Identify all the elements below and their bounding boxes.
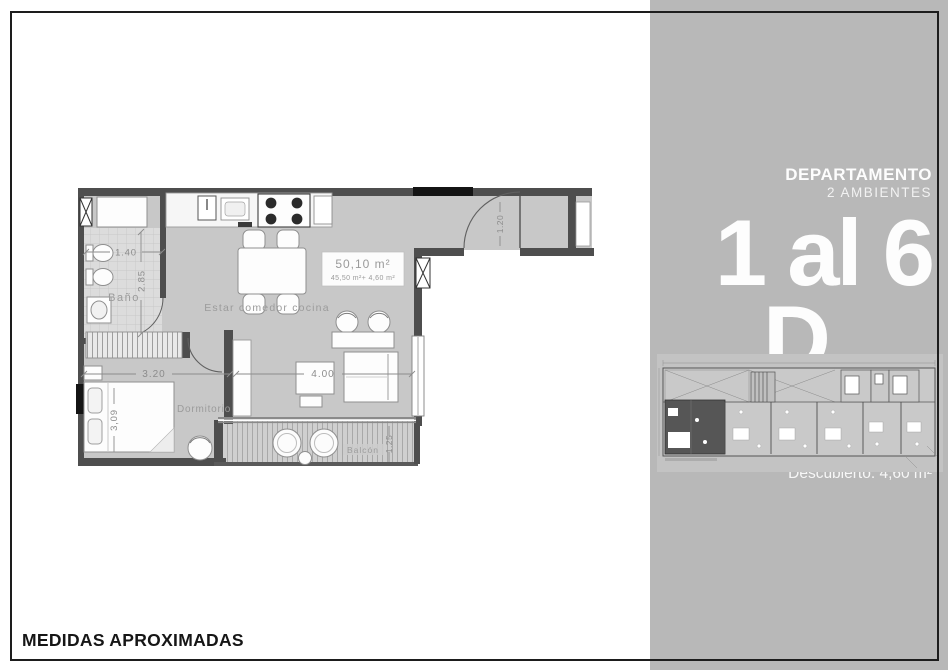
desk xyxy=(332,332,394,348)
floor-plan: 50,10 m² 45,50 m²+ 4,60 m² Baño Estar co… xyxy=(70,180,610,480)
balcony-sliding-door xyxy=(218,417,416,423)
room-label-living: Estar comedor cocina xyxy=(204,302,330,314)
key-plan-highlighted-unit xyxy=(665,400,725,454)
stair-landing xyxy=(576,202,590,246)
chair xyxy=(243,230,265,250)
toilet-icon xyxy=(86,245,93,261)
dim-living-width: 4.00 xyxy=(311,369,334,380)
area-label-detail: 45,50 m²+ 4,60 m² xyxy=(331,275,395,282)
chair xyxy=(368,311,390,333)
footer-note: MEDIDAS APROXIMADAS xyxy=(22,630,244,651)
dining-table xyxy=(238,248,306,294)
dim-bedroom-length: 3,09 xyxy=(109,409,120,431)
room-label-bathroom: Baño xyxy=(108,292,140,304)
vent-icon xyxy=(238,222,252,227)
dim-bath-length: 2.85 xyxy=(137,270,148,292)
stove-icon xyxy=(258,194,310,227)
pouf xyxy=(300,396,322,407)
chair xyxy=(277,230,299,250)
room-label-balcony: Balcón xyxy=(347,445,379,455)
unit-range: 1 al 6 xyxy=(662,210,932,296)
room-label-bedroom: Dormitorio xyxy=(177,404,231,415)
kitchen xyxy=(166,193,332,227)
closet xyxy=(233,340,251,416)
brochure-page: 50,10 m² 45,50 m²+ 4,60 m² Baño Estar co… xyxy=(0,0,948,670)
chair xyxy=(336,311,358,333)
dim-balcony-depth: 1.25 xyxy=(384,435,394,454)
nightstand xyxy=(84,366,102,380)
fridge-icon xyxy=(314,196,332,224)
bidet-icon xyxy=(86,269,93,285)
area-label-main: 50,10 m² xyxy=(335,257,390,271)
wardrobe xyxy=(86,332,182,358)
dim-entry-width: 1.20 xyxy=(495,215,505,234)
balcony-stool xyxy=(299,452,312,465)
dim-bedroom-width: 3.20 xyxy=(142,369,165,380)
sidebar-title: DEPARTAMENTO xyxy=(662,166,932,184)
dim-bath-width: 1.40 xyxy=(115,248,137,259)
pillow xyxy=(88,388,102,413)
info-sidebar: DEPARTAMENTO 2 AMBIENTES 1 al 6 D 50,10 … xyxy=(650,0,948,670)
living-window xyxy=(412,336,424,416)
key-plan xyxy=(655,350,945,476)
key-plan-caption xyxy=(665,458,717,461)
pillow xyxy=(88,419,102,444)
sidebar-subtitle: 2 AMBIENTES xyxy=(662,185,932,200)
area-label-box: 50,10 m² 45,50 m²+ 4,60 m² xyxy=(322,252,404,286)
laundry-closet xyxy=(97,197,147,227)
chair xyxy=(188,436,212,460)
